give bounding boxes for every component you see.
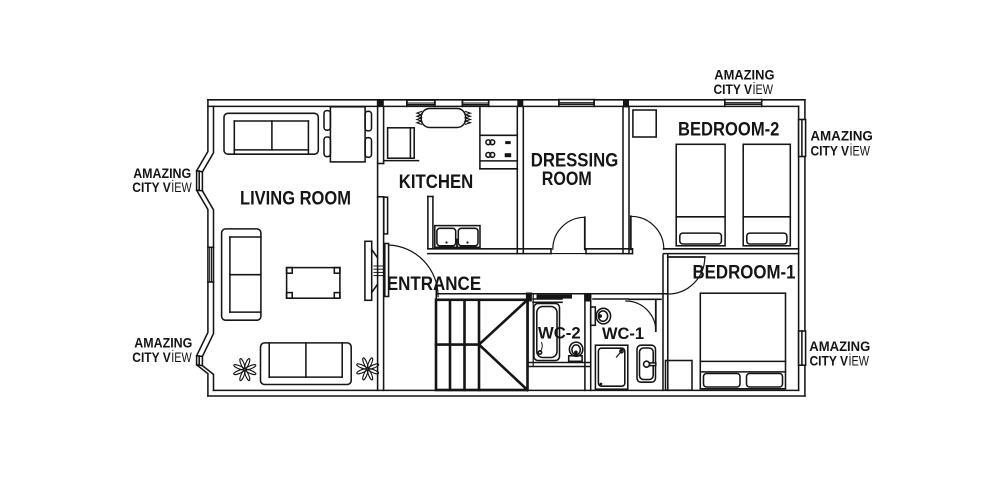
- svg-text:CITY V: CITY V: [811, 142, 850, 158]
- svg-text:İEW: İEW: [753, 80, 774, 97]
- svg-text:BEDROOM-2: BEDROOM-2: [678, 118, 780, 140]
- svg-text:AMAZING: AMAZING: [810, 128, 873, 144]
- svg-text:İEW: İEW: [850, 141, 871, 158]
- svg-text:LIVING ROOM: LIVING ROOM: [240, 188, 351, 210]
- svg-text:ROOM: ROOM: [542, 168, 592, 190]
- svg-text:CITY V: CITY V: [132, 179, 171, 195]
- svg-text:ENTRANCE: ENTRANCE: [387, 273, 481, 295]
- svg-text:CITY V: CITY V: [132, 349, 171, 365]
- svg-text:WC-1: WC-1: [602, 325, 644, 343]
- svg-text:İEW: İEW: [849, 352, 870, 369]
- svg-text:CITY V: CITY V: [714, 81, 753, 97]
- svg-text:İEW: İEW: [171, 348, 192, 365]
- svg-text:WC-2: WC-2: [538, 325, 581, 343]
- svg-text:KITCHEN: KITCHEN: [399, 171, 474, 193]
- svg-text:BEDROOM-1: BEDROOM-1: [693, 262, 796, 284]
- svg-text:CITY V: CITY V: [810, 353, 849, 369]
- svg-text:İEW: İEW: [171, 178, 192, 195]
- svg-text:AMAZING: AMAZING: [714, 66, 774, 82]
